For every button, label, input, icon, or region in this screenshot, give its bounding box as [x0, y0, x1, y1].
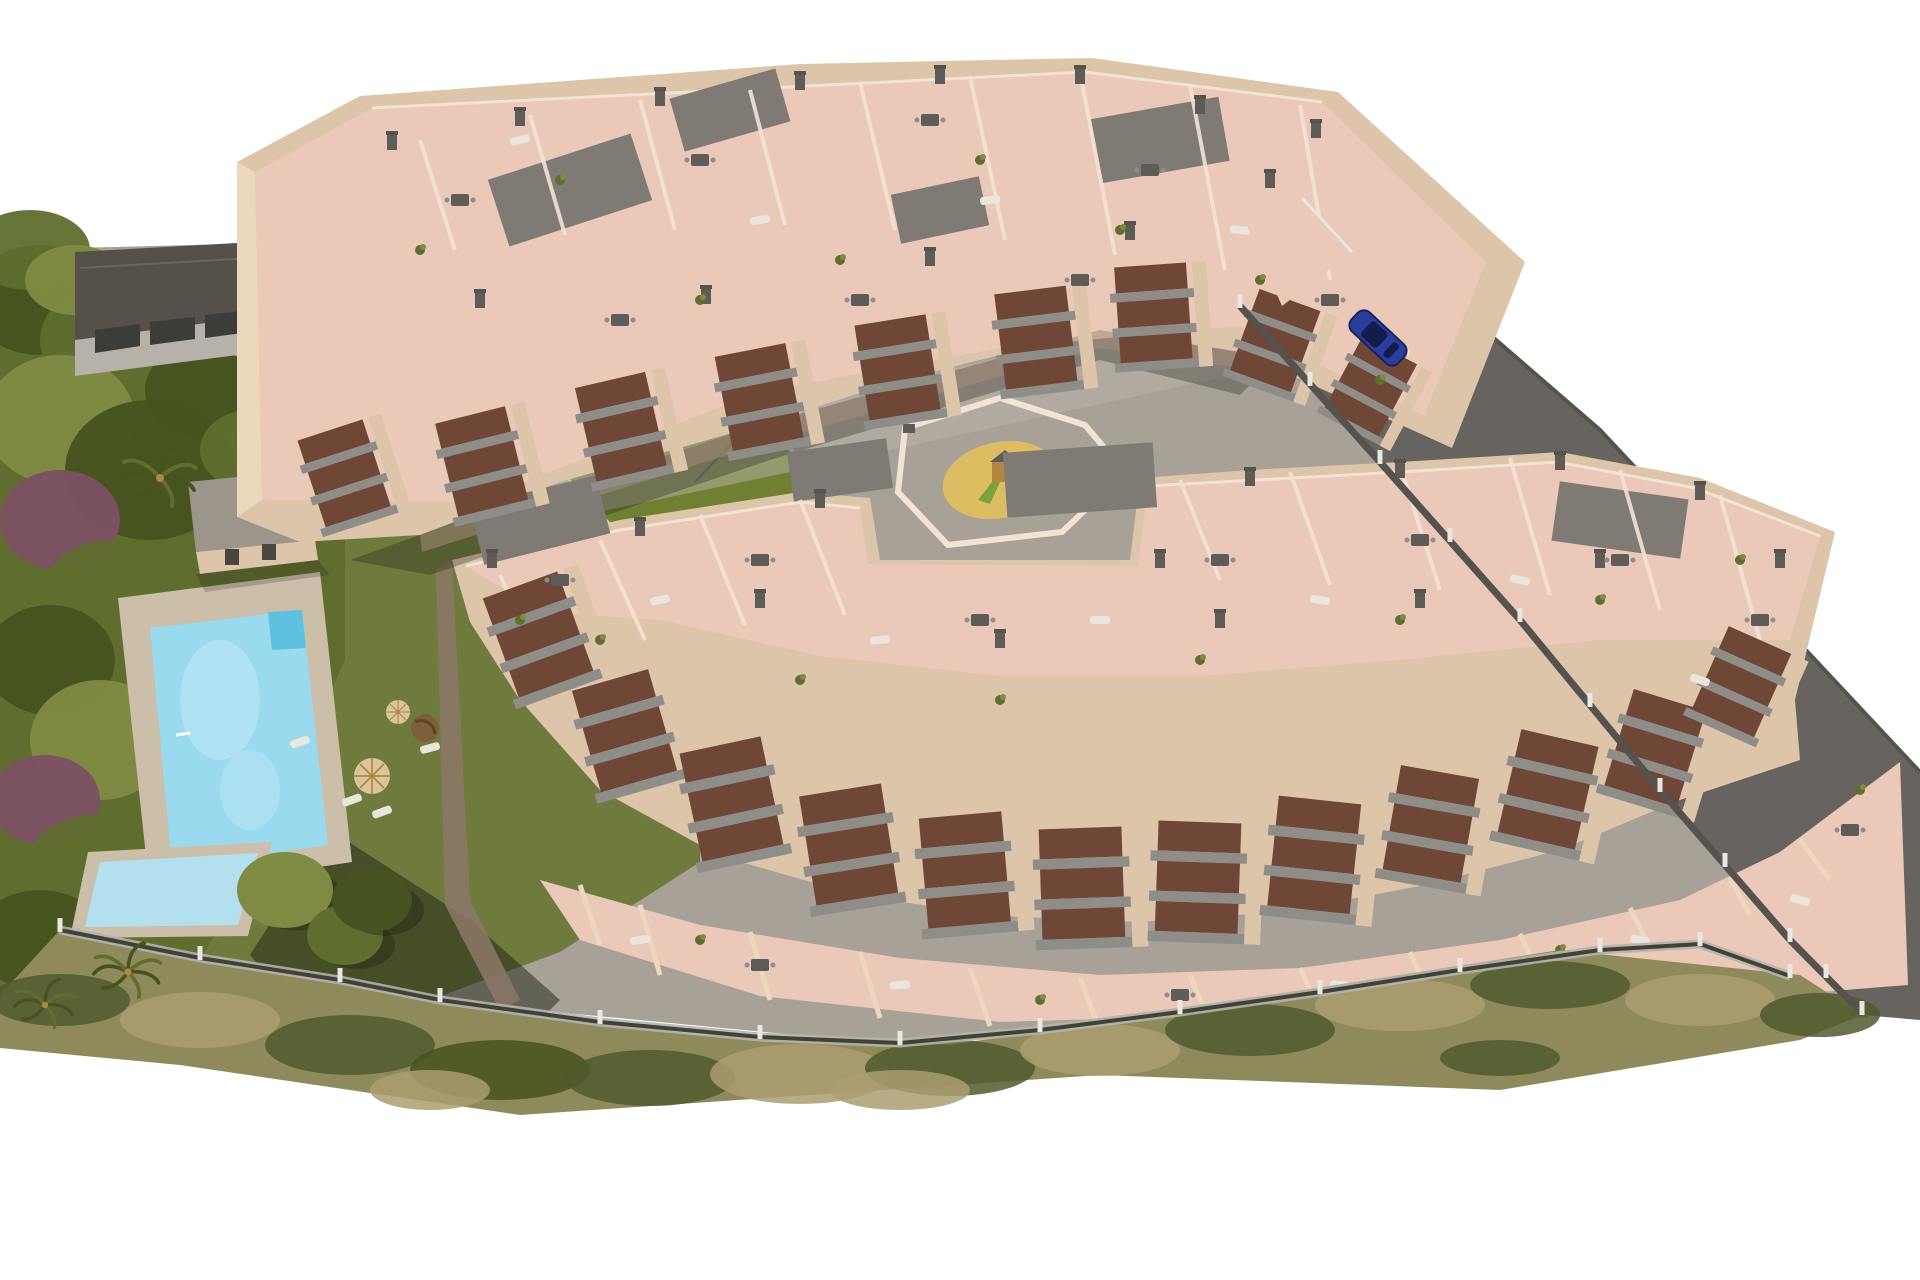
parasol: [354, 758, 390, 794]
parasol: [386, 700, 410, 724]
road-fence-post: [1723, 853, 1728, 867]
road-fence-post: [1448, 528, 1453, 542]
chimney: [474, 289, 486, 308]
fence-post: [1788, 964, 1793, 978]
chimney: [1694, 481, 1706, 500]
fence-post: [758, 1025, 763, 1039]
road-fence-post: [1658, 778, 1663, 792]
fence-post: [338, 968, 343, 982]
pool-house-door: [262, 544, 276, 560]
road-fence-post: [1518, 608, 1523, 622]
scrub-clump: [265, 1015, 435, 1075]
chimney: [634, 517, 646, 536]
chimney: [654, 87, 666, 106]
scrub-clump: [120, 992, 280, 1048]
chimney: [924, 247, 936, 266]
chimney: [994, 629, 1006, 648]
fence-post: [1698, 932, 1703, 946]
flat-gray-roof: [1003, 442, 1157, 517]
chimney: [1074, 65, 1086, 84]
kids-pool-water: [85, 853, 258, 927]
road-fence-post: [1824, 964, 1829, 978]
architectural-render-canvas: [0, 0, 1920, 1280]
chimney: [754, 589, 766, 608]
chimney: [794, 71, 806, 90]
scrub-clump: [830, 1070, 970, 1110]
chimney: [934, 65, 946, 84]
chimney: [814, 489, 826, 508]
pool-sparkle: [220, 750, 280, 830]
pool-house-door: [225, 549, 239, 565]
pool-steps: [268, 610, 306, 650]
chimney: [1414, 589, 1426, 608]
scene-svg: [0, 0, 1920, 1280]
chimney: [1214, 609, 1226, 628]
fence-post: [1458, 958, 1463, 972]
chimney: [1594, 549, 1606, 568]
chimney: [1154, 549, 1166, 568]
road-fence-post: [1788, 928, 1793, 942]
chimney: [1244, 467, 1256, 486]
road-fence-post: [1308, 372, 1313, 386]
scrub-clump: [1625, 974, 1775, 1026]
chimney: [1194, 95, 1206, 114]
road-fence-post: [1588, 693, 1593, 707]
sun-lounger: [890, 980, 911, 989]
chimney: [514, 107, 526, 126]
chimney: [386, 131, 398, 150]
chimney: [1124, 221, 1136, 240]
chimney: [1554, 451, 1566, 470]
fence-post: [58, 918, 63, 932]
fence-post: [1318, 980, 1323, 994]
fence-post: [898, 1031, 903, 1045]
fence-post: [1178, 1000, 1183, 1014]
chimney: [1264, 169, 1276, 188]
chimney: [486, 549, 498, 568]
scrub-clump: [565, 1050, 735, 1106]
road-fence-post: [1378, 450, 1383, 464]
fence-post: [1598, 938, 1603, 952]
fence-post: [198, 946, 203, 960]
garden-tree: [332, 868, 412, 932]
fence-post: [438, 988, 443, 1002]
chimney: [1774, 549, 1786, 568]
sun-lounger: [1090, 616, 1110, 624]
chimney: [1310, 119, 1322, 138]
fence-post: [1038, 1018, 1043, 1032]
playground-sign: [903, 424, 915, 433]
road-fence-post: [1860, 1001, 1865, 1015]
scrub-clump: [1440, 1040, 1560, 1076]
fence-post: [598, 1010, 603, 1024]
road-fence-post: [1238, 294, 1243, 308]
pool-sparkle: [180, 640, 260, 760]
pool-ladder: [176, 733, 190, 735]
scrub-clump: [370, 1070, 490, 1110]
